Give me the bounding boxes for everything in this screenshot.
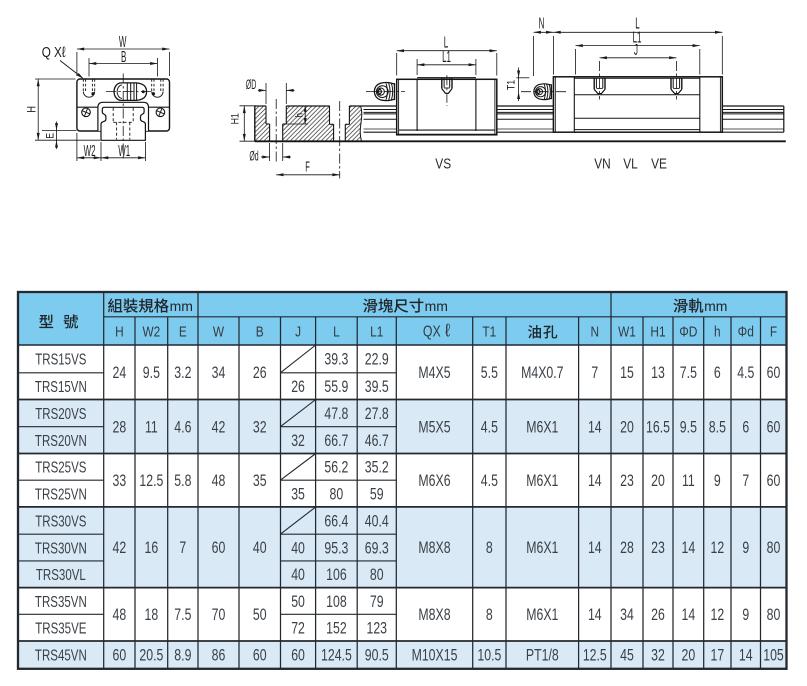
svg-text:39.3: 39.3 (324, 351, 348, 369)
svg-text:TRS30VL: TRS30VL (36, 565, 86, 583)
svg-text:7: 7 (179, 540, 186, 558)
svg-text:60: 60 (253, 647, 267, 665)
svg-text:mm: mm (170, 298, 193, 314)
svg-text:8: 8 (486, 540, 493, 558)
svg-text:12: 12 (711, 540, 725, 558)
svg-text:M6X1: M6X1 (526, 607, 558, 625)
svg-text:42: 42 (212, 419, 226, 437)
svg-text:J: J (634, 41, 638, 59)
svg-text:123: 123 (366, 620, 387, 638)
svg-text:56.2: 56.2 (324, 459, 348, 477)
svg-text:12: 12 (711, 607, 725, 625)
svg-text:QX: QX (423, 322, 441, 340)
svg-text:16: 16 (145, 540, 159, 558)
svg-text:h: h (714, 323, 721, 340)
svg-text:5.8: 5.8 (174, 472, 191, 490)
svg-text:TRS35VE: TRS35VE (35, 619, 86, 637)
svg-text:7.5: 7.5 (680, 365, 697, 383)
svg-text:20.5: 20.5 (139, 647, 163, 665)
svg-text:59: 59 (370, 486, 384, 504)
svg-text:L1: L1 (442, 48, 451, 66)
svg-text:6: 6 (742, 419, 749, 437)
svg-text:Ød: Ød (249, 149, 258, 164)
svg-text:69.3: 69.3 (365, 540, 389, 558)
svg-text:48: 48 (212, 472, 226, 490)
svg-text:35.2: 35.2 (365, 459, 389, 477)
svg-text:14: 14 (588, 472, 602, 490)
svg-text:42: 42 (113, 540, 127, 558)
svg-text:9: 9 (714, 472, 721, 490)
svg-text:24: 24 (113, 365, 127, 383)
svg-text:11: 11 (682, 472, 695, 490)
svg-text:H: H (115, 323, 124, 340)
svg-text:72: 72 (291, 620, 305, 638)
svg-text:8: 8 (486, 607, 493, 625)
svg-text:PT1/8: PT1/8 (526, 647, 559, 665)
svg-text:28: 28 (620, 540, 634, 558)
svg-text:27.8: 27.8 (365, 405, 389, 423)
svg-text:80: 80 (330, 486, 344, 504)
svg-text:6: 6 (714, 365, 721, 383)
svg-text:80: 80 (370, 567, 384, 585)
svg-text:9: 9 (742, 540, 749, 558)
svg-text:105: 105 (763, 647, 784, 665)
svg-text:86: 86 (212, 647, 226, 665)
svg-text:N: N (591, 323, 600, 340)
svg-text:32: 32 (253, 419, 267, 437)
svg-text:M6X1: M6X1 (526, 540, 558, 558)
svg-text:TRS25VS: TRS25VS (35, 458, 86, 476)
svg-text:TRS15VS: TRS15VS (35, 350, 86, 368)
svg-text:108: 108 (326, 593, 347, 611)
svg-text:4.5: 4.5 (737, 365, 754, 383)
svg-text:9.5: 9.5 (143, 365, 160, 383)
svg-text:9.5: 9.5 (680, 419, 697, 437)
svg-text:L1: L1 (370, 323, 383, 340)
svg-text:40: 40 (253, 540, 267, 558)
svg-text:32: 32 (651, 647, 665, 665)
svg-text:W2: W2 (84, 142, 96, 160)
svg-text:4.6: 4.6 (174, 419, 191, 437)
svg-text:12.5: 12.5 (139, 472, 163, 490)
svg-text:14: 14 (588, 419, 602, 437)
svg-text:34: 34 (620, 607, 634, 625)
svg-text:152: 152 (326, 620, 347, 638)
svg-text:47.8: 47.8 (324, 405, 348, 423)
svg-text:60: 60 (767, 419, 781, 437)
svg-text:14: 14 (682, 607, 696, 625)
svg-text:46.7: 46.7 (365, 432, 389, 450)
svg-text:90.5: 90.5 (365, 647, 389, 665)
svg-text:H: H (27, 106, 39, 113)
svg-text:10.5: 10.5 (477, 647, 501, 665)
svg-text:20: 20 (651, 472, 665, 490)
svg-text:26: 26 (651, 607, 665, 625)
svg-text:60: 60 (291, 647, 305, 665)
svg-text:106: 106 (326, 567, 347, 585)
svg-text:VE: VE (651, 155, 667, 171)
svg-text:VS: VS (435, 155, 451, 171)
svg-text:35: 35 (253, 472, 267, 490)
svg-text:J: J (295, 323, 301, 340)
svg-text:48: 48 (113, 607, 127, 625)
svg-text:14: 14 (682, 540, 696, 558)
svg-text:E: E (179, 323, 187, 340)
svg-text:16.5: 16.5 (646, 419, 670, 437)
svg-text:W1: W1 (618, 323, 636, 340)
svg-text:95.3: 95.3 (324, 540, 348, 558)
svg-text:4.5: 4.5 (481, 419, 498, 437)
svg-text:M10X15: M10X15 (412, 647, 458, 665)
svg-text:50: 50 (253, 607, 267, 625)
svg-text:N: N (539, 15, 545, 33)
svg-text:M8X8: M8X8 (418, 540, 450, 558)
svg-text:Φd: Φd (738, 323, 754, 340)
svg-text:23: 23 (651, 540, 665, 558)
svg-text:9: 9 (742, 607, 749, 625)
svg-text:H1: H1 (230, 113, 242, 125)
svg-text:Q Xℓ: Q Xℓ (42, 44, 66, 61)
svg-text:26: 26 (253, 365, 267, 383)
svg-text:M4X5: M4X5 (418, 365, 450, 383)
svg-text:T1: T1 (482, 323, 496, 340)
svg-text:T1: T1 (506, 79, 518, 90)
svg-text:4.5: 4.5 (481, 472, 498, 490)
svg-text:18: 18 (145, 607, 159, 625)
svg-text:8.5: 8.5 (709, 419, 726, 437)
svg-text:M6X1: M6X1 (526, 419, 558, 437)
svg-text:ΦD: ΦD (679, 323, 697, 340)
svg-text:55.9: 55.9 (324, 378, 348, 396)
svg-text:35: 35 (291, 486, 305, 504)
svg-text:11: 11 (145, 419, 158, 437)
svg-text:ØD: ØD (246, 78, 256, 93)
svg-text:40: 40 (291, 540, 305, 558)
svg-text:mm: mm (425, 298, 448, 314)
svg-text:28: 28 (113, 419, 127, 437)
svg-text:80: 80 (767, 540, 781, 558)
svg-text:3.2: 3.2 (174, 365, 191, 383)
svg-text:60: 60 (767, 365, 781, 383)
svg-text:M5X5: M5X5 (418, 419, 450, 437)
svg-text:7: 7 (742, 472, 749, 490)
svg-text:26: 26 (291, 378, 305, 396)
svg-text:60: 60 (113, 647, 127, 665)
svg-text:F: F (305, 158, 310, 176)
svg-text:H1: H1 (650, 323, 665, 340)
svg-text:17: 17 (711, 647, 725, 665)
svg-text:60: 60 (767, 472, 781, 490)
svg-text:TRS15VN: TRS15VN (35, 377, 87, 395)
svg-text:M4X0.7: M4X0.7 (521, 365, 563, 383)
svg-text:33: 33 (113, 472, 127, 490)
svg-text:W1: W1 (118, 142, 130, 160)
svg-text:B: B (256, 323, 264, 340)
svg-text:45: 45 (620, 647, 634, 665)
svg-text:34: 34 (212, 365, 226, 383)
svg-text:L: L (333, 323, 340, 340)
svg-text:66.4: 66.4 (324, 513, 348, 531)
svg-text:TRS45VN: TRS45VN (35, 646, 87, 664)
svg-text:W: W (213, 323, 224, 340)
svg-text:M6X6: M6X6 (418, 472, 450, 490)
svg-text:20: 20 (682, 647, 696, 665)
svg-text:TRS35VN: TRS35VN (35, 592, 87, 610)
svg-text:TRS20VS: TRS20VS (35, 404, 86, 422)
svg-text:TRS30VS: TRS30VS (35, 511, 86, 529)
svg-text:40: 40 (291, 567, 305, 585)
svg-text:70: 70 (212, 607, 226, 625)
svg-text:50: 50 (291, 593, 305, 611)
svg-text:mm: mm (704, 298, 727, 314)
svg-text:124.5: 124.5 (321, 647, 352, 665)
svg-text:32: 32 (291, 432, 305, 450)
svg-text:M8X8: M8X8 (418, 607, 450, 625)
svg-text:12.5: 12.5 (583, 647, 607, 665)
svg-text:5.5: 5.5 (481, 365, 498, 383)
svg-text:7.5: 7.5 (174, 607, 191, 625)
svg-text:13: 13 (651, 365, 665, 383)
svg-text:M6X1: M6X1 (526, 472, 558, 490)
svg-text:VN: VN (594, 155, 611, 171)
svg-text:22.9: 22.9 (365, 351, 389, 369)
svg-text:TRS30VN: TRS30VN (35, 538, 87, 556)
svg-text:8.9: 8.9 (174, 647, 191, 665)
svg-text:39.5: 39.5 (365, 378, 389, 396)
svg-text:20: 20 (620, 419, 634, 437)
svg-text:80: 80 (767, 607, 781, 625)
svg-text:TRS20VN: TRS20VN (35, 431, 87, 449)
svg-text:h: h (294, 113, 306, 118)
svg-text:TRS25VN: TRS25VN (35, 484, 87, 502)
svg-text:B: B (121, 48, 126, 66)
svg-text:VL: VL (623, 155, 638, 171)
svg-text:F: F (770, 323, 777, 340)
svg-text:40.4: 40.4 (365, 513, 389, 531)
svg-text:7: 7 (591, 365, 598, 383)
svg-text:E: E (45, 133, 57, 139)
svg-text:79: 79 (370, 593, 384, 611)
svg-text:15: 15 (620, 365, 634, 383)
svg-text:66.7: 66.7 (324, 432, 348, 450)
svg-text:14: 14 (588, 607, 602, 625)
svg-text:W2: W2 (142, 323, 160, 340)
svg-text:23: 23 (620, 472, 634, 490)
svg-text:14: 14 (739, 647, 753, 665)
svg-text:ℓ: ℓ (445, 320, 451, 341)
svg-text:60: 60 (212, 540, 226, 558)
svg-text:14: 14 (588, 540, 602, 558)
